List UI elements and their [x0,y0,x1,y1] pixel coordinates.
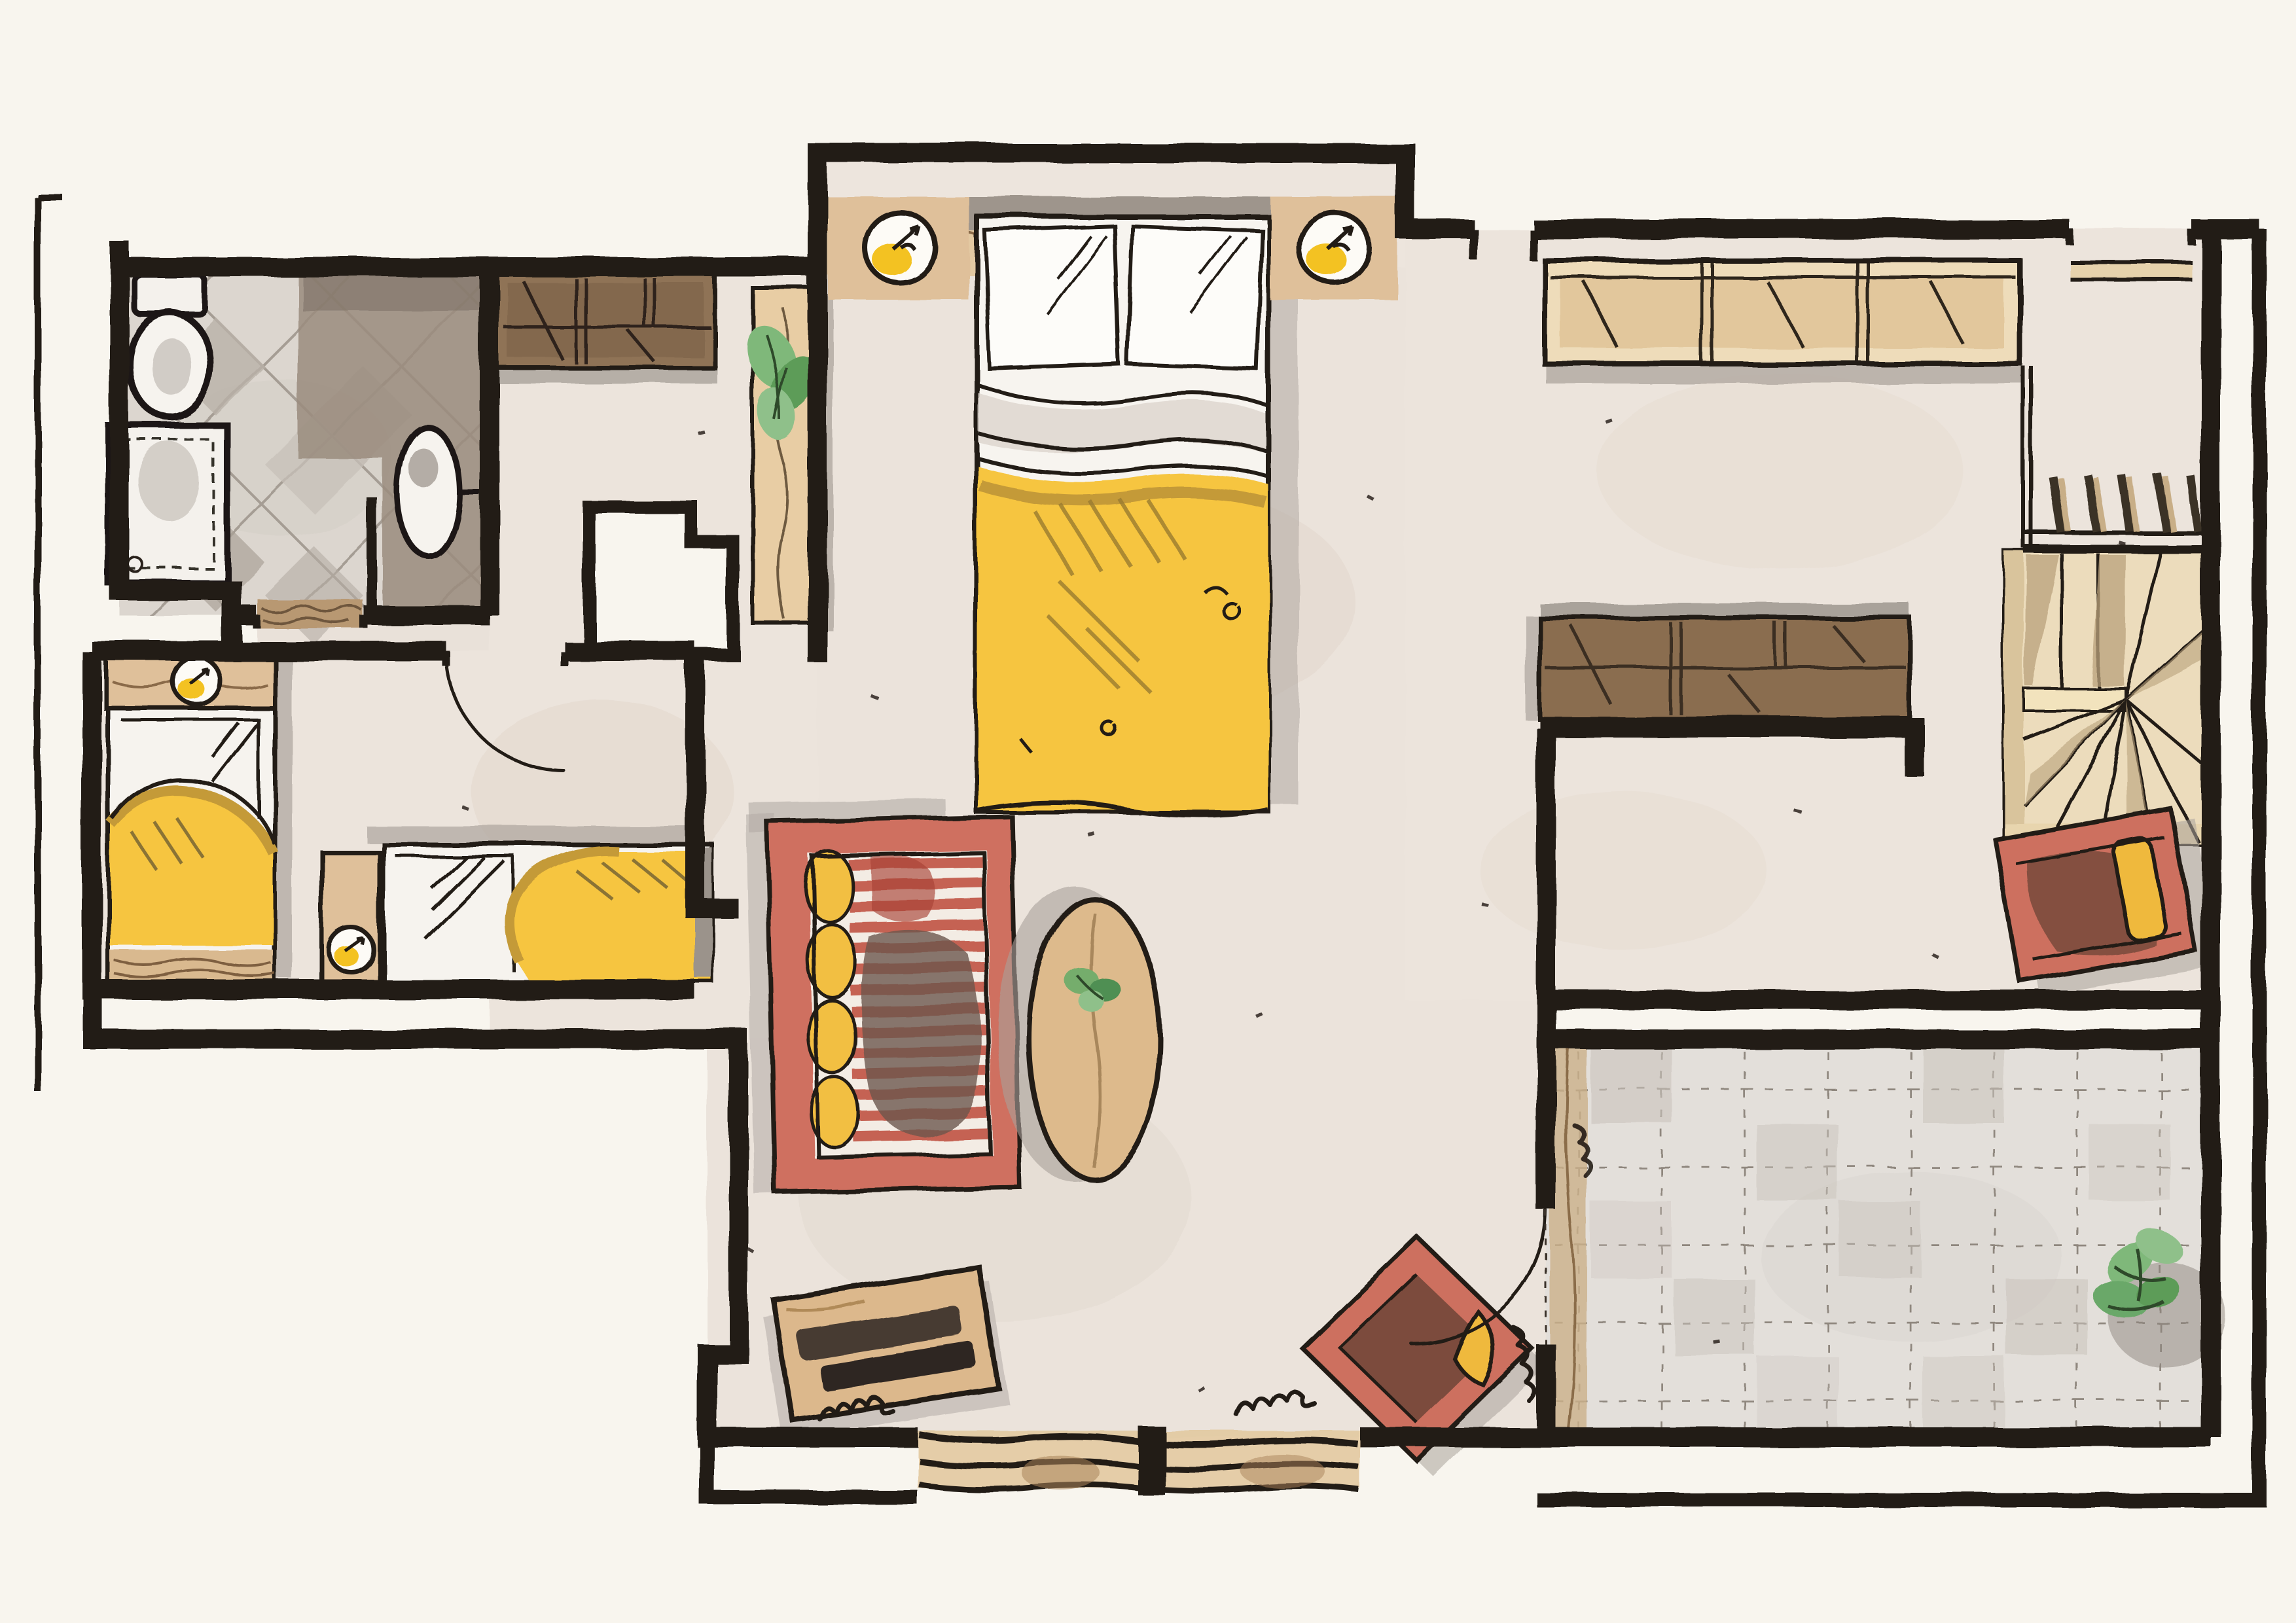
toilet [130,275,211,418]
duvet [978,466,1268,810]
red-daybed [1995,805,2219,999]
roof-edge-line [38,198,63,1092]
sideboard [1525,603,1910,720]
nightstand-left [828,196,969,300]
room-terrace [1548,1042,2225,1435]
coffee-table [997,886,1160,1182]
floorplan-svg [0,0,2296,1623]
top-window-sill [2070,260,2191,280]
double-bed [977,216,1299,816]
bathroom-door-threshold [258,599,363,628]
sofa-shadow-blob [859,927,983,1139]
south-window [918,1425,1360,1495]
bedside-lamp-icon [173,657,220,704]
kids-bed-vertical [106,653,292,982]
taupe-dark-band [302,275,482,311]
winder-stairs [2004,551,2214,844]
window-mullion [1138,1425,1165,1495]
wardrobe-row [1545,260,2024,383]
sofa [746,797,1020,1194]
floorplan-canvas [0,0,2296,1623]
hall-wardrobe [496,272,717,383]
nightstand-right [1270,196,1397,300]
bedside-lamp-icon [329,928,374,972]
